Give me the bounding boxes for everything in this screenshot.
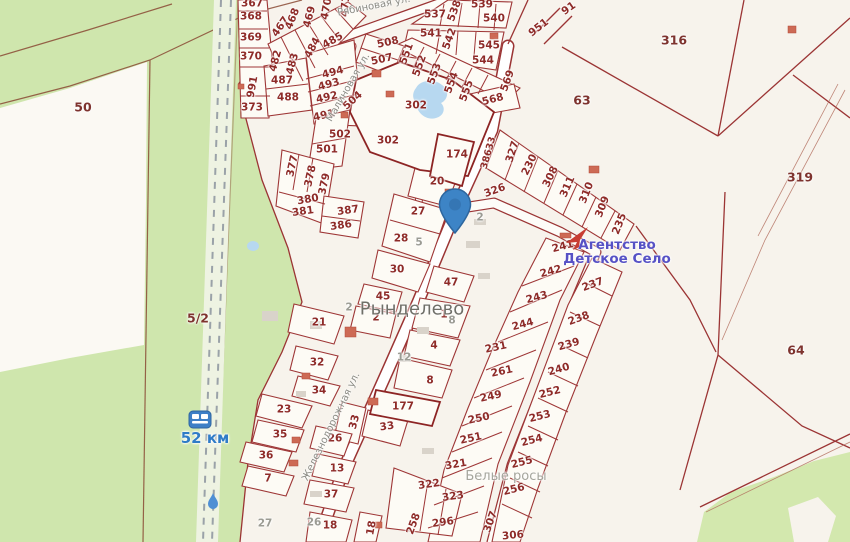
- agency-arrow-icon: [562, 224, 592, 254]
- map-geometry: [0, 0, 850, 542]
- cadastral-map[interactable]: 3673683693709913734674684694704714824834…: [0, 0, 850, 542]
- railway-station-icon[interactable]: [188, 410, 212, 430]
- location-pin[interactable]: [438, 188, 472, 234]
- track-lines: [706, 84, 850, 512]
- field-parcel-50: [0, 62, 147, 372]
- water-droplet-icon: [206, 492, 220, 510]
